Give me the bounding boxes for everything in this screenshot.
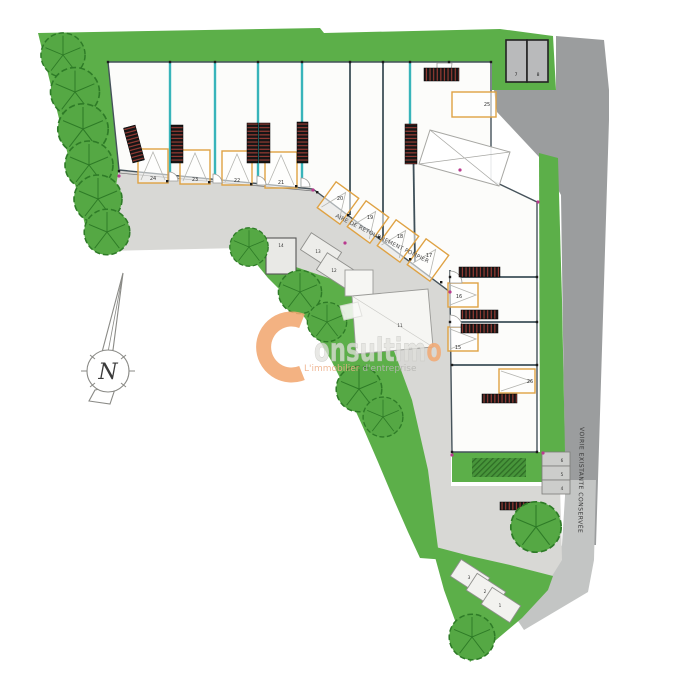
garage-door	[448, 283, 478, 307]
unit-label-20: 20	[337, 196, 343, 202]
cell-label-4: 4	[561, 486, 564, 491]
box-label-14: 14	[278, 243, 284, 248]
right-parking-cells	[542, 452, 570, 494]
cell-label-1: 1	[499, 603, 502, 608]
north-arrow: N	[81, 273, 135, 404]
box-label-7: 7	[515, 72, 518, 78]
cell-label-13: 13	[315, 249, 321, 254]
unit-label-16: 16	[456, 294, 462, 300]
brand-tagline: L'immobilier d'entreprise	[304, 364, 417, 374]
unit-label-25: 25	[484, 102, 490, 108]
unit-label-24: 24	[150, 176, 156, 182]
tree-icon	[449, 614, 495, 660]
unit-label-26: 26	[527, 379, 533, 385]
cell-label-6: 6	[561, 458, 564, 463]
unit-label-19: 19	[367, 215, 373, 221]
unit-label-15: 15	[455, 345, 461, 351]
cell-label-2: 2	[484, 589, 487, 594]
tree-icon	[511, 502, 561, 552]
structure-label-11: 11	[397, 323, 403, 328]
unit-label-22: 22	[234, 178, 240, 184]
box-label-8: 8	[537, 72, 540, 78]
unit-label-23: 23	[192, 177, 198, 183]
tree-icon	[84, 209, 130, 255]
cell-label-3: 3	[468, 575, 471, 580]
brand-c-icon	[264, 319, 302, 375]
cell-label-5: 5	[561, 472, 564, 477]
cell-label-12: 12	[331, 268, 337, 273]
tree-icon	[363, 397, 403, 437]
north-label: N	[97, 360, 118, 385]
unit-label-21: 21	[278, 180, 284, 186]
site-plan: 24 23 22 21 20 19 18 17 16 15 25 26 14 1…	[0, 0, 682, 700]
unit-label-18: 18	[397, 234, 403, 240]
hedge	[472, 458, 526, 477]
tree-icon	[230, 228, 268, 266]
